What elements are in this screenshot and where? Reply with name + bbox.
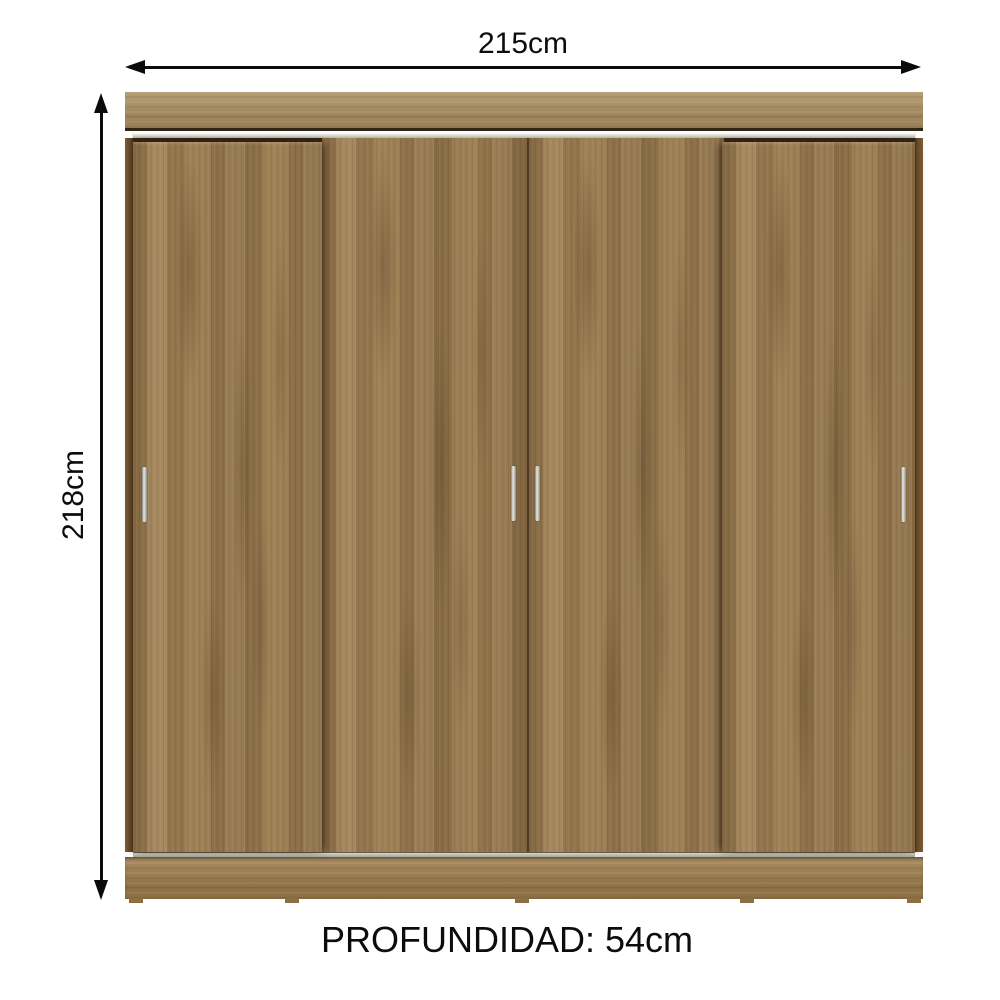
doors-area (125, 138, 923, 852)
arrow-right-icon (901, 60, 921, 74)
wardrobe-foot (515, 898, 529, 903)
wardrobe-left-edge (125, 138, 133, 852)
wardrobe-foot (285, 898, 299, 903)
height-dimension-line (100, 107, 103, 886)
door-handle-1 (142, 467, 147, 522)
wardrobe-right-edge (915, 138, 923, 852)
wardrobe-foot (907, 898, 921, 903)
sliding-door-3 (527, 138, 724, 852)
height-dimension-arrow (93, 93, 109, 900)
wardrobe-foot (129, 898, 143, 903)
wardrobe (125, 92, 923, 899)
top-sliding-rail (133, 131, 915, 138)
width-dimension-line (139, 66, 907, 69)
door-handle-2 (511, 466, 516, 521)
wardrobe-base-plinth (125, 857, 923, 899)
wardrobe-top-panel (125, 92, 923, 128)
width-dimension-arrow (125, 59, 921, 75)
door-handle-3 (535, 466, 540, 521)
wardrobe-foot (740, 898, 754, 903)
sliding-door-1 (133, 142, 322, 852)
product-dimension-diagram: 215cm 218cm PROF (0, 0, 1000, 1000)
height-dimension-label: 218cm (57, 415, 91, 575)
arrow-down-icon (94, 880, 108, 900)
width-dimension-label: 215cm (125, 29, 921, 59)
door-handle-4 (901, 467, 906, 522)
sliding-door-2 (322, 138, 527, 852)
sliding-door-4 (722, 142, 915, 852)
depth-dimension-label: PROFUNDIDAD: 54cm (107, 922, 907, 958)
